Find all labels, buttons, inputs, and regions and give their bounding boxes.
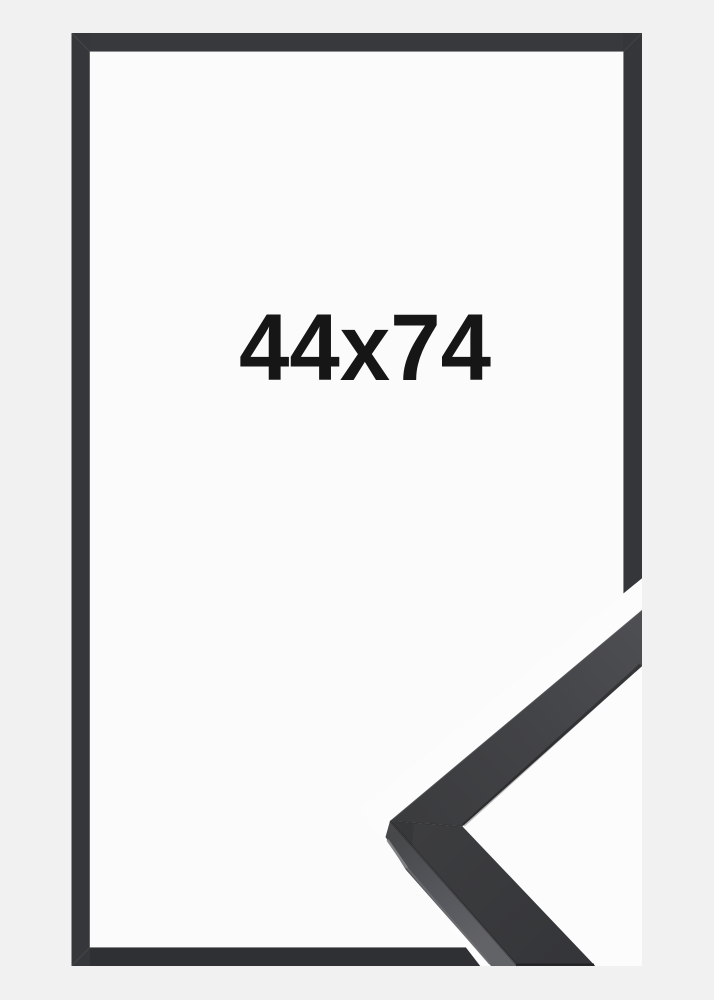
svg-text:44x74: 44x74 [239, 295, 491, 401]
